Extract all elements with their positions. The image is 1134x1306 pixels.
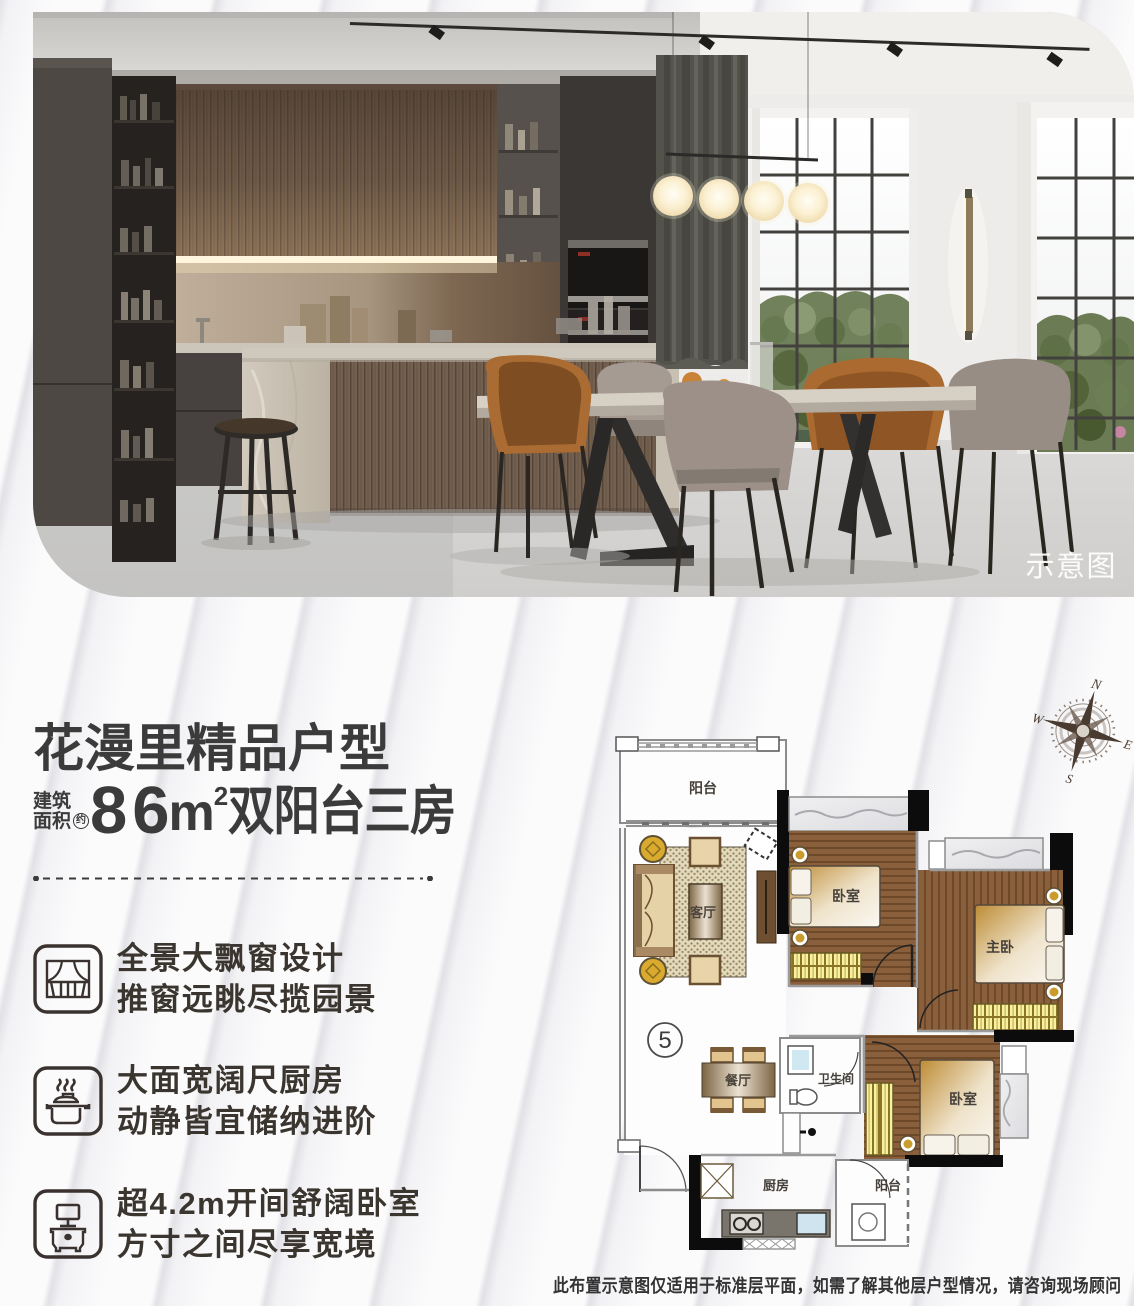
svg-text:卧室: 卧室: [949, 1091, 977, 1107]
svg-text:餐厅: 餐厅: [724, 1073, 751, 1088]
svg-text:S: S: [1064, 770, 1075, 786]
svg-text:W: W: [1030, 710, 1046, 728]
svg-text:卧室: 卧室: [832, 888, 860, 904]
svg-text:客厅: 客厅: [690, 905, 716, 920]
svg-text:厨房: 厨房: [763, 1178, 789, 1193]
svg-text:E: E: [1121, 736, 1134, 753]
svg-text:N: N: [1089, 677, 1104, 694]
svg-text:主卧: 主卧: [986, 939, 1014, 955]
svg-text:阳台: 阳台: [689, 780, 717, 796]
svg-text:5: 5: [658, 1027, 671, 1054]
